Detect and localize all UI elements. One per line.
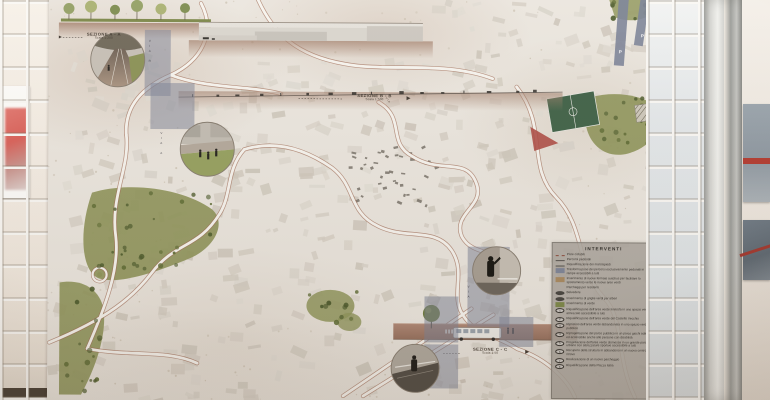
section-b-label: SEZIONE B - B Scala 1:500: [337, 93, 413, 102]
legend-item-symbol: [556, 286, 565, 291]
legend-item-text: Recupero della struttura in abbandono in…: [566, 350, 651, 358]
legend-item-text: Inserimento di griglie verdi per alberi: [566, 297, 617, 301]
legend-item-text: Trasformazione dei percorsi esclusivamen…: [567, 268, 652, 276]
legend-item: 3 Ripristino dell'area verde abbandonata…: [555, 323, 651, 331]
poster-board: SEZIONE A - A Scala 1:200 SEZIONE B - B …: [47, 0, 657, 400]
picture-frame-2: [743, 220, 770, 280]
legend-item-symbol: 3: [555, 323, 564, 328]
artwork-canvas: [5, 108, 27, 190]
legend-item-symbol: 8: [555, 365, 564, 370]
section-a-label: SEZIONE A - A Scala 1:200: [69, 32, 139, 41]
legend-item-symbol: 5: [555, 341, 564, 346]
wall-left: [0, 0, 50, 400]
legend-item-text: Inserimento di verde: [566, 302, 594, 306]
framed-artwork: [2, 86, 30, 198]
street-label: VIA R: [148, 39, 152, 64]
legend-item: Trasformazione dei percorsi esclusivamen…: [556, 268, 652, 276]
legend-list: Piste ciclabili Percorsi pedonali Riqual…: [555, 253, 652, 370]
legend-item-symbol: 4: [555, 332, 564, 337]
legend-item-symbol: [556, 265, 565, 267]
legend-item-text: Riqualificazione dell'area verde limitro…: [566, 308, 651, 316]
legend-item-symbol: [556, 277, 565, 282]
legend-item-symbol: [556, 268, 565, 273]
legend-item: 6 Recupero della struttura in abbandono …: [555, 350, 651, 358]
legend-item-text: Riqualificazione della Piazza Italia: [566, 365, 613, 369]
legend-item-symbol: [555, 297, 564, 301]
legend-item: 8 Riqualificazione della Piazza Italia: [555, 365, 651, 371]
legend-item-symbol: 2: [555, 317, 564, 322]
legend-item-text: Riqualificazione dell'area verde del Cas…: [566, 317, 639, 321]
exhibit-photo: SEZIONE A - A Scala 1:200 SEZIONE B - B …: [0, 0, 770, 400]
legend-item-symbol: [555, 302, 564, 307]
legend-item-text: Realizzazione di un nuovo parcheggio: [566, 358, 619, 362]
legend-title: INTERVENTI: [556, 246, 652, 252]
legend-item-symbol: [556, 291, 565, 295]
street-label: VIA: [466, 285, 470, 300]
legend-item-symbol: 7: [555, 358, 564, 363]
legend-item-symbol: [556, 260, 565, 261]
legend-item: 1 Riqualificazione dell'area verde limit…: [555, 308, 651, 316]
legend-item-text: Parcheggi per residenti: [567, 286, 599, 290]
red-stripe: [743, 158, 770, 164]
legend-item-text: Inserimento di nuove fermate autobus per…: [567, 277, 652, 285]
picture-frame-1: [743, 104, 770, 202]
street-label: VIA A: [159, 131, 163, 156]
legend-panel: INTERVENTI Piste ciclabili Percorsi pedo…: [551, 242, 656, 400]
red-diagonal: [740, 242, 770, 257]
legend-item-text: Belvedere: [567, 291, 581, 295]
legend-item-symbol: [556, 255, 565, 256]
floor: [0, 388, 50, 400]
legend-item: Inserimento di nuove fermate autobus per…: [556, 277, 652, 285]
legend-item-text: Progettazione dell'area verde dismessa i…: [566, 341, 651, 349]
legend-item-symbol: 1: [555, 308, 564, 313]
legend-item-text: Riprogettazione del parco pubblico in un…: [566, 332, 651, 340]
wall-behind-grid: [646, 0, 704, 400]
parking-mark: P: [619, 49, 622, 54]
legend-item-text: Ripristino dell'area verde abbandonata i…: [566, 323, 651, 331]
section-c-label: SEZIONE C - C Scala 1:50: [453, 347, 527, 356]
legend-item-symbol: 6: [555, 350, 564, 355]
legend-item: 4 Riprogettazione del parco pubblico in …: [555, 332, 651, 340]
metal-pillar: [704, 0, 742, 400]
legend-item: 5 Progettazione dell'area verde dismessa…: [555, 341, 651, 349]
